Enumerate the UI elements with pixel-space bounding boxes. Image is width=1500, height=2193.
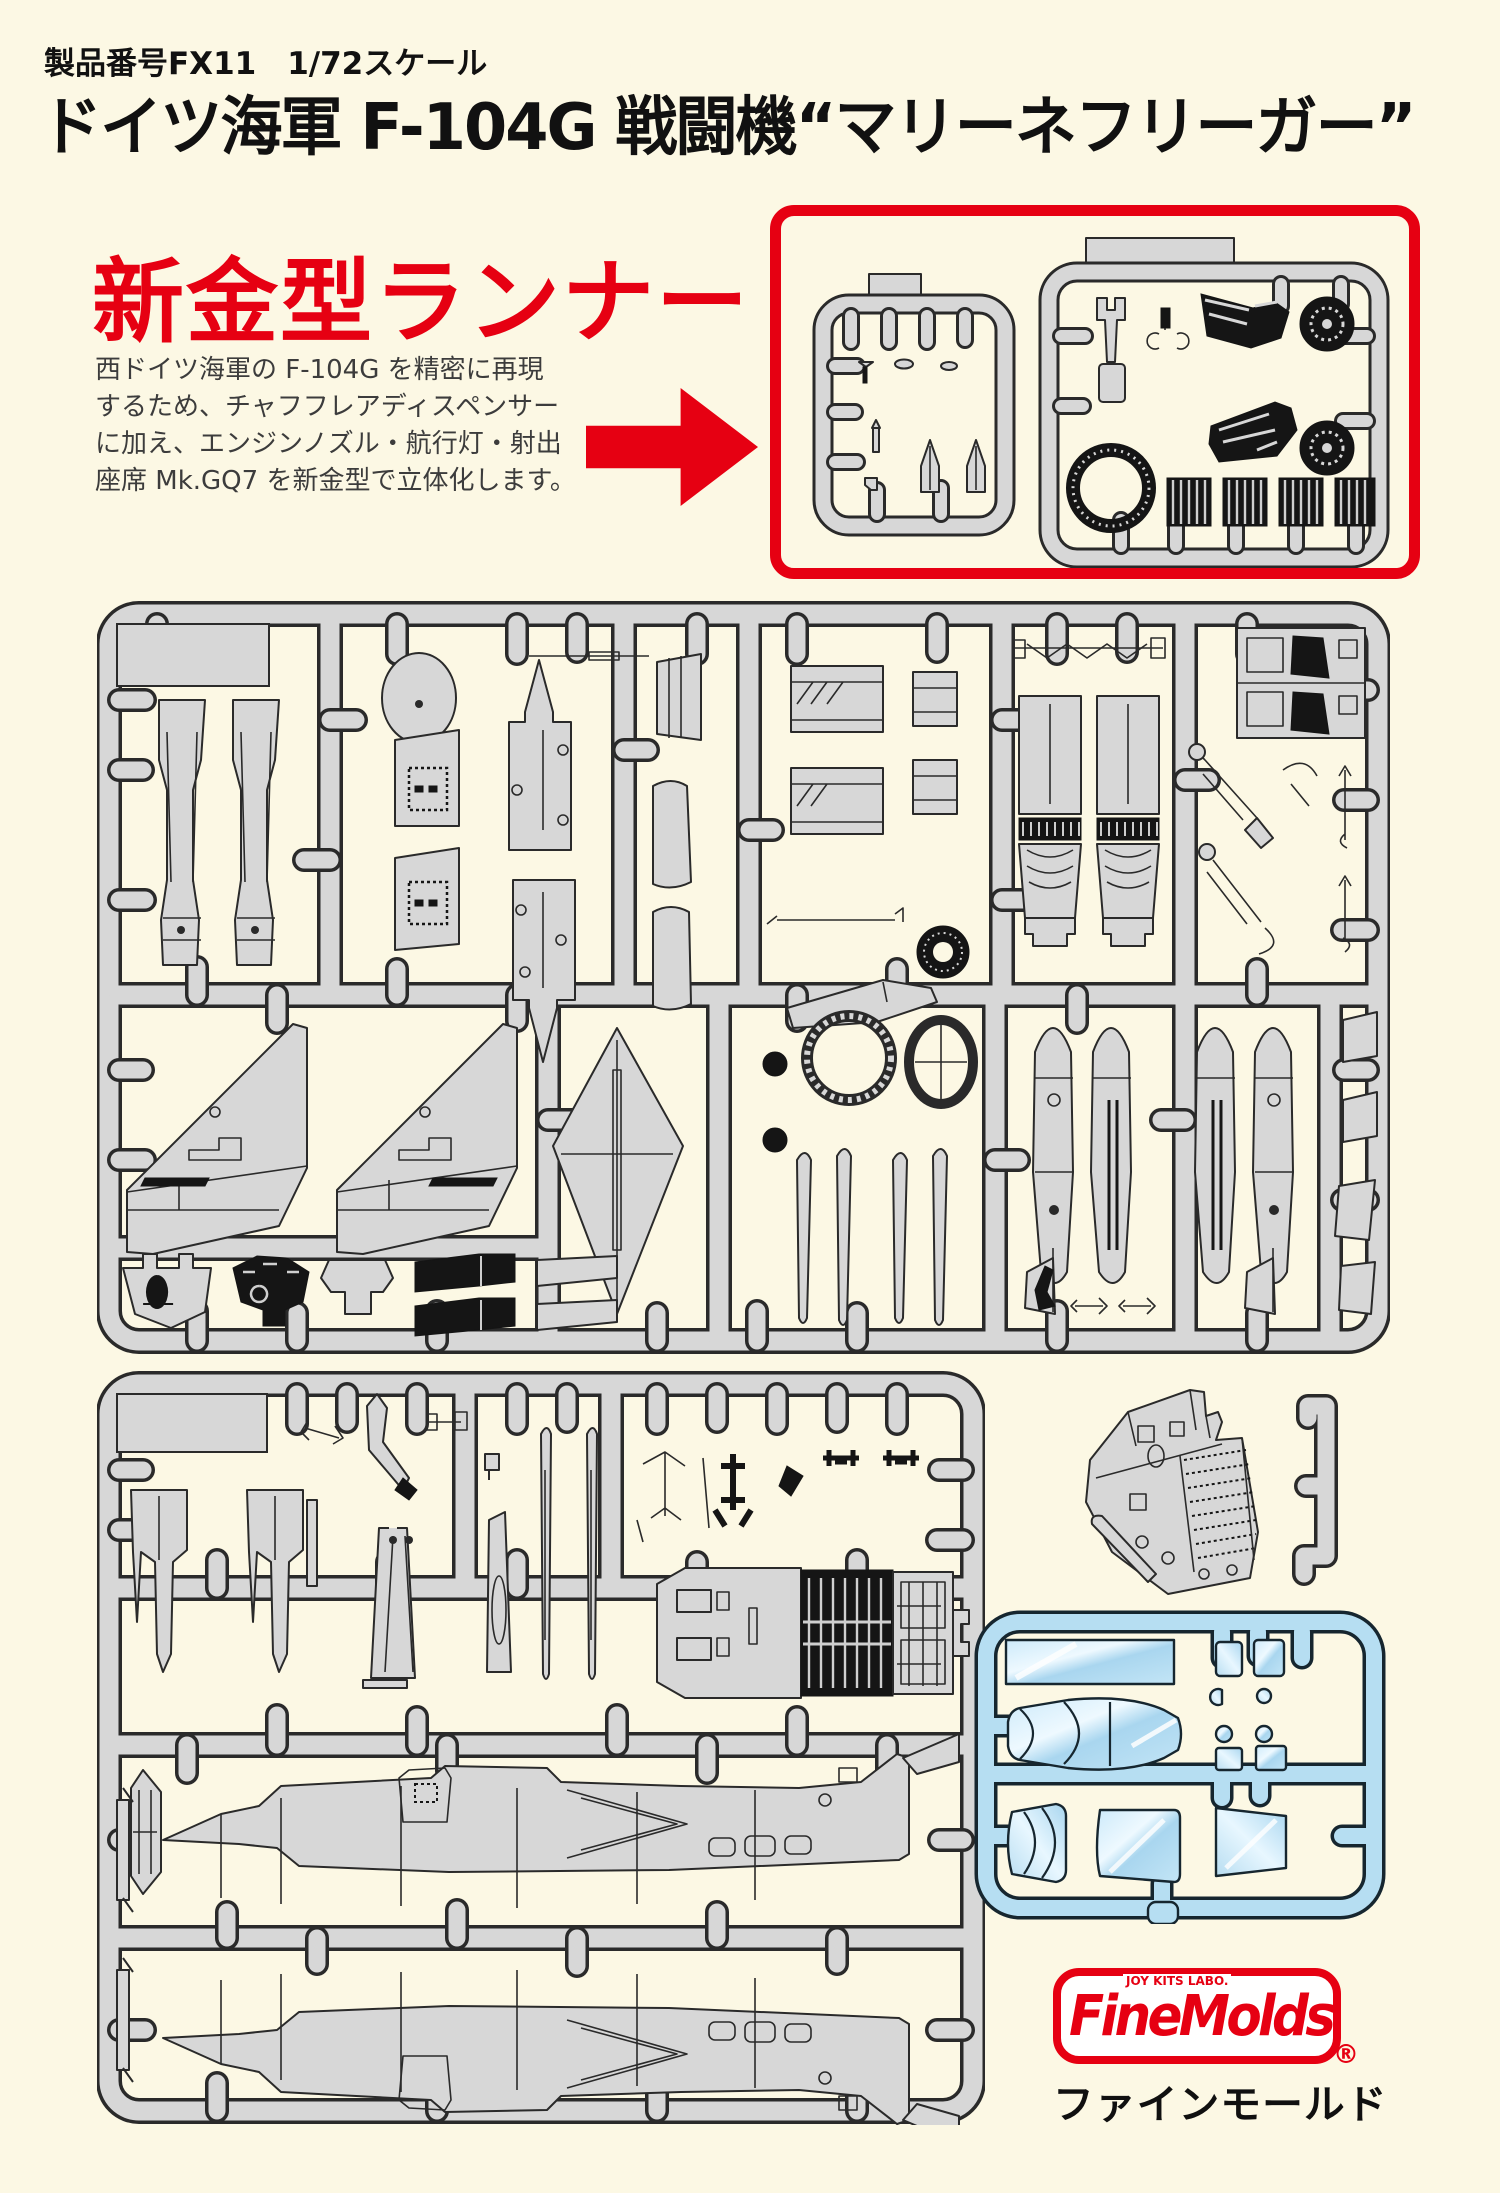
engine-nozzle-halves (1013, 638, 1165, 946)
flap-parts (415, 1254, 617, 1336)
cockpit-tub-assembly (657, 1568, 969, 1698)
promo-line-3: に加え、エンジンノズル・航行灯・射出 (95, 426, 576, 463)
right-arrow-icon (586, 388, 758, 506)
promo-body-text: 西ドイツ海軍の F-104G を精密に再現 するため、チャフフレアディスペンサー… (95, 352, 576, 500)
tail-fin-part (1072, 1382, 1340, 1614)
fuel-tank-parts (1025, 1028, 1293, 1314)
molded-tag (117, 1394, 267, 1452)
registered-mark: ® (1333, 2040, 1359, 2070)
blade-and-rail-parts (485, 1428, 597, 1679)
promo-line-2: するため、チャフフレアディスペンサー (95, 389, 576, 426)
cockpit-floor-assembly (131, 1770, 161, 1894)
ring-parts (763, 1016, 973, 1152)
fin-runner-bracket (1304, 1406, 1326, 1574)
page-title: ドイツ海軍 F-104G 戦闘機“マリーネフリーガー” (40, 76, 1415, 168)
promo-headline: 新金型ランナー (92, 228, 750, 361)
canopy-part (1008, 1698, 1181, 1769)
boarding-ladder-parts (301, 1394, 467, 1500)
slat-parts (797, 1149, 947, 1325)
side-window-parts (1097, 1808, 1286, 1882)
cockpit-sidewall-parts (1237, 628, 1365, 738)
new-sprue-small (823, 274, 1005, 526)
new-runner-sprues-figure (781, 216, 1409, 568)
wheel-parts (1300, 297, 1354, 475)
nose-gear-leg-parts (637, 1450, 919, 1542)
gear-retraction-strut (363, 1528, 415, 1688)
windshield-part (1008, 1804, 1066, 1882)
intake-ramp-parts (395, 730, 459, 950)
disc-part (382, 653, 456, 743)
logo-wordmark: FineMolds (1069, 1984, 1332, 2049)
ejection-seat-parts (1201, 294, 1297, 462)
clear-parts-sprue (972, 1606, 1388, 1924)
engine-nozzle-part (1073, 450, 1149, 526)
aft-fuselage-halves (159, 700, 279, 965)
intake-lip-parts (653, 654, 701, 1010)
new-runner-highlight-box (770, 205, 1420, 579)
promo-line-4: 座席 Mk.GQ7 を新金型で立体化します。 (95, 463, 576, 500)
fuselage-half-right (163, 1734, 959, 1908)
molded-tag (117, 624, 269, 686)
canopy-blank-part (1006, 1640, 1174, 1684)
finemolds-logo: JOY KITS LABO. FineMolds ® (1053, 1968, 1341, 2064)
sprue-panel-1 (97, 600, 1390, 1355)
wing-parts (127, 1024, 517, 1254)
avionics-box-parts (767, 666, 969, 1028)
brand-name-kana: ファインモールド (1053, 2072, 1388, 2130)
sprue-frame (109, 614, 1378, 1341)
promo-line-1: 西ドイツ海軍の F-104G を精密に再現 (95, 352, 576, 389)
chaff-flare-dispenser-parts (1167, 478, 1375, 526)
new-sprue-large (1049, 238, 1379, 558)
sprue-panel-2 (97, 1370, 985, 2125)
fin-part-body (1086, 1390, 1258, 1594)
